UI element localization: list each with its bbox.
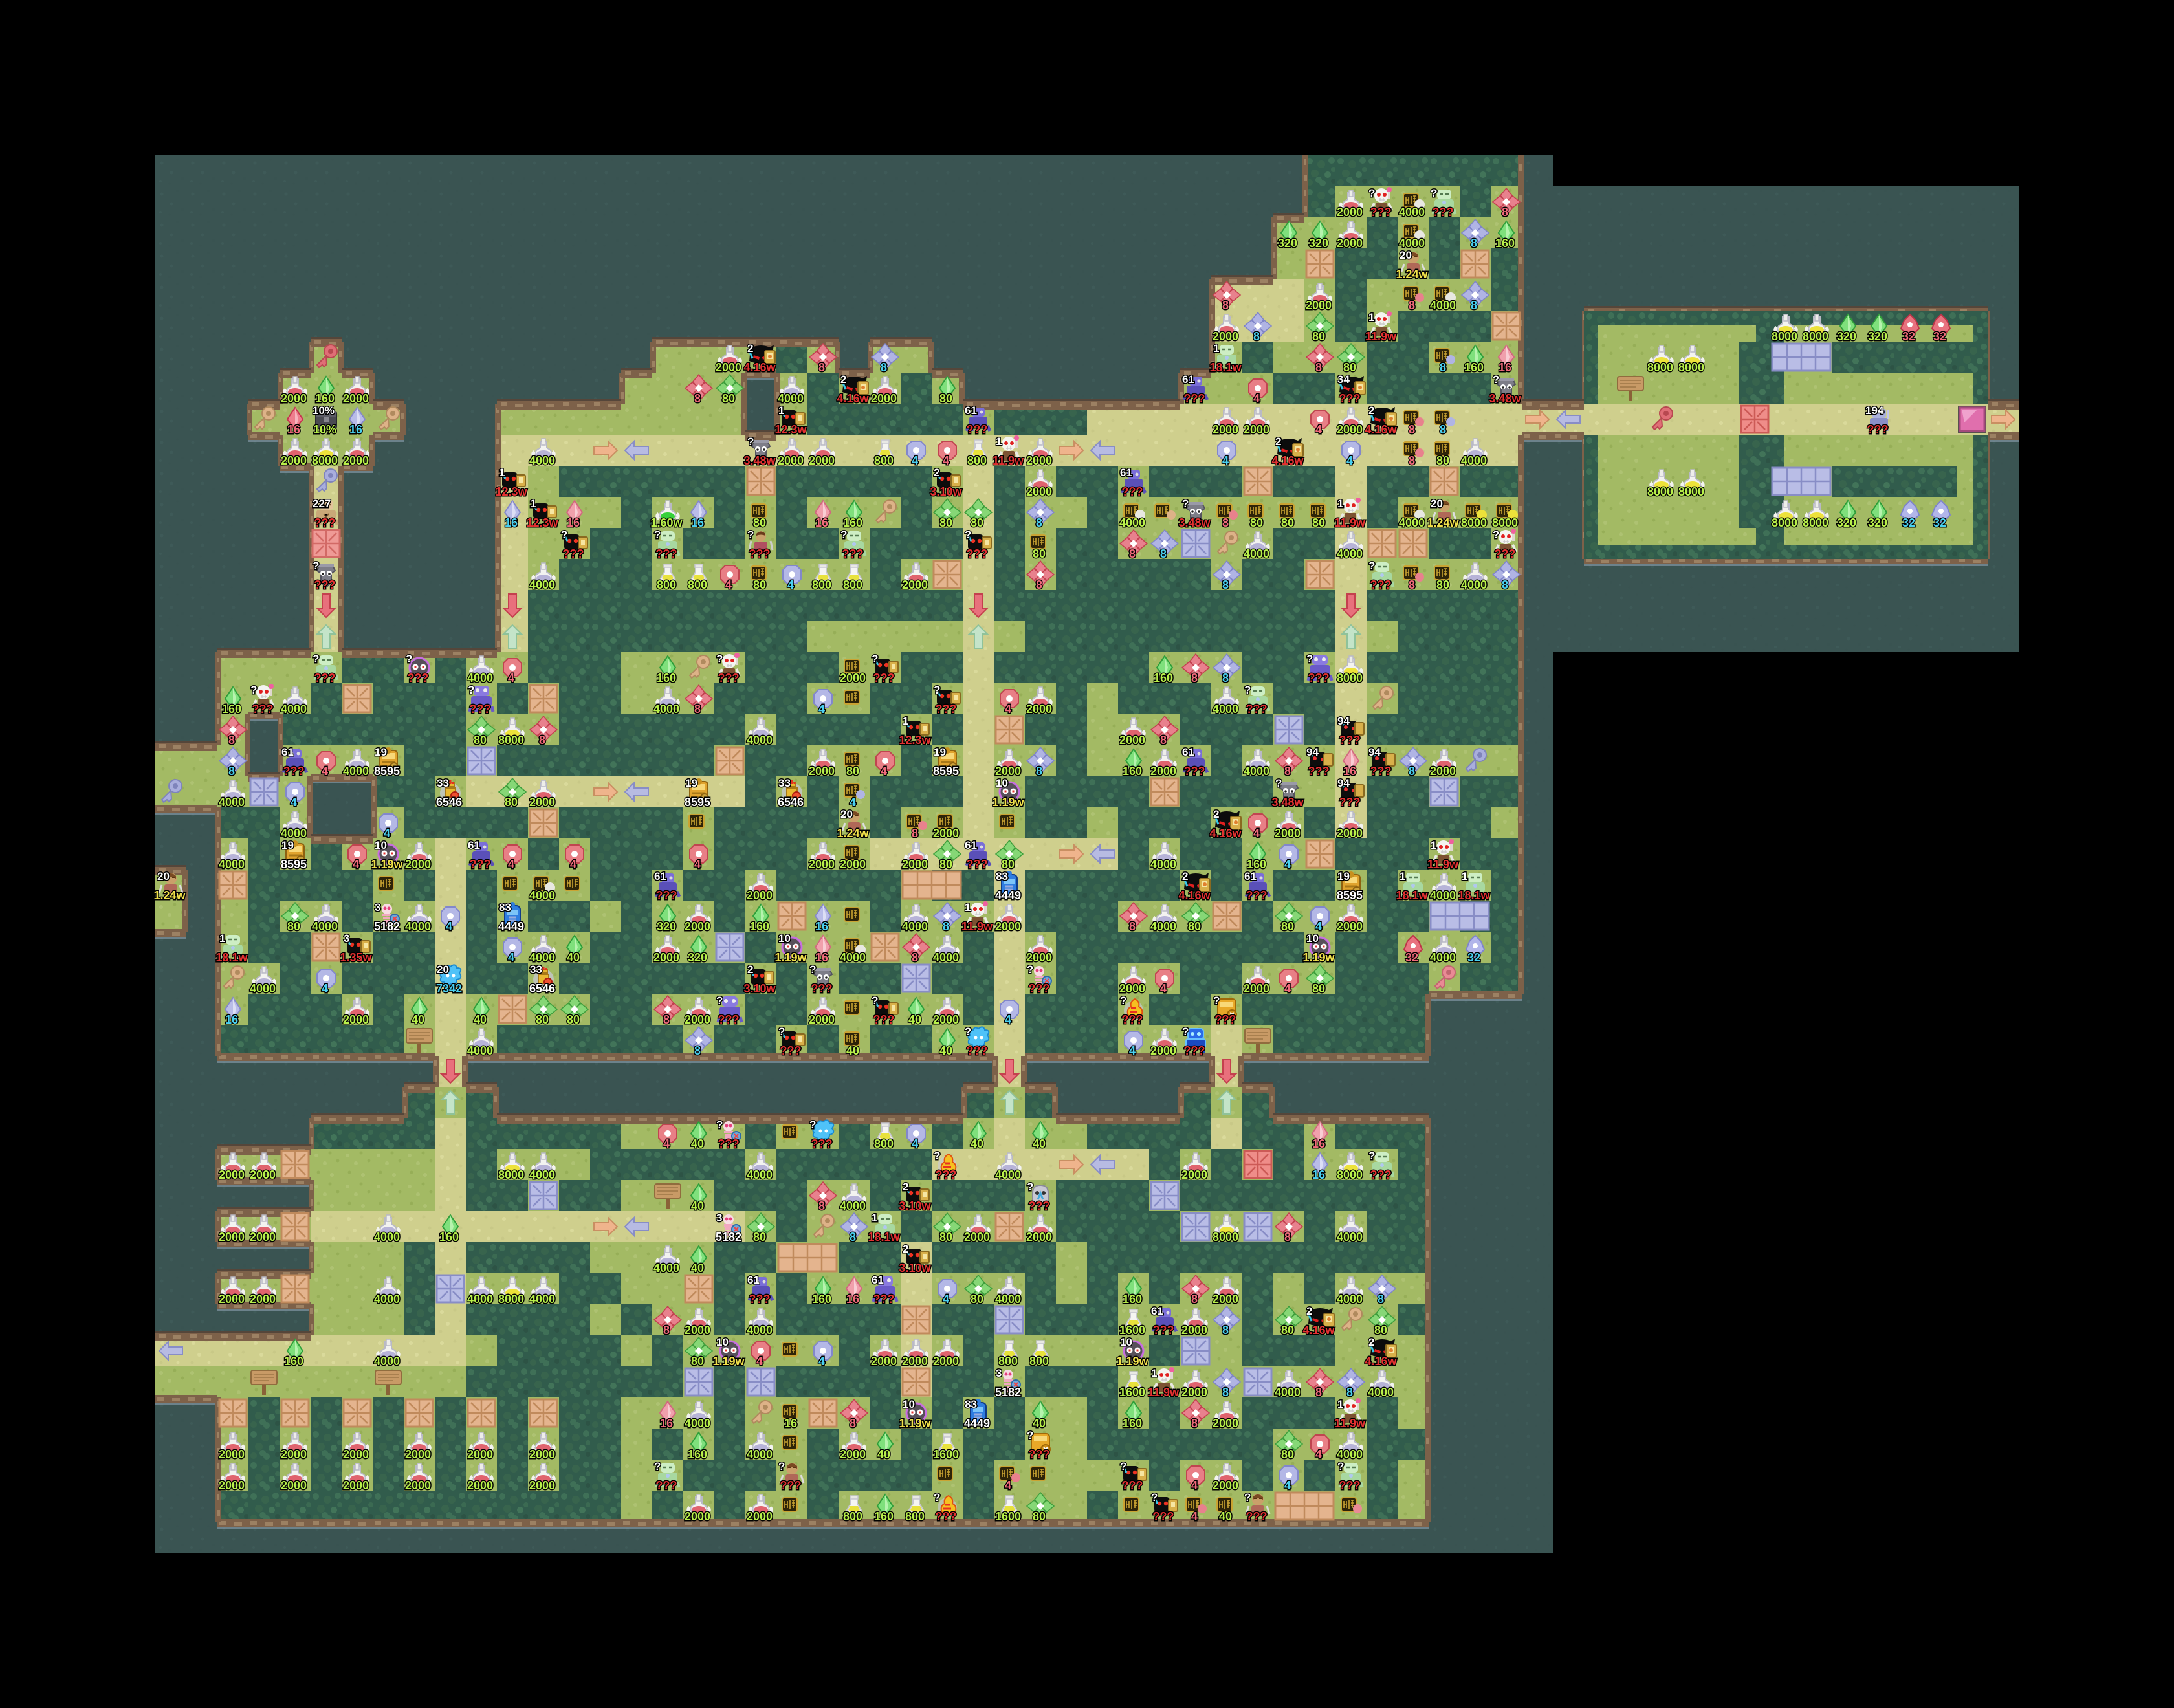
svg-text:8: 8 <box>1222 299 1229 312</box>
svg-text:4: 4 <box>787 578 794 591</box>
svg-text:2: 2 <box>840 373 846 386</box>
svg-text:160: 160 <box>1154 672 1173 684</box>
svg-text:2000: 2000 <box>405 858 431 871</box>
svg-text:40: 40 <box>412 1013 424 1026</box>
svg-text:160: 160 <box>1123 1417 1142 1430</box>
svg-text:?: ? <box>809 963 816 976</box>
svg-text:???: ??? <box>1308 672 1330 684</box>
svg-text:160: 160 <box>315 392 335 405</box>
svg-text:???: ??? <box>1246 703 1268 716</box>
svg-text:8: 8 <box>1409 578 1415 591</box>
svg-text:18.1w: 18.1w <box>1209 361 1242 374</box>
svg-text:61: 61 <box>468 839 480 851</box>
svg-text:???: ??? <box>811 1137 833 1150</box>
svg-text:3.48w: 3.48w <box>1271 796 1304 809</box>
svg-text:4000: 4000 <box>529 454 555 467</box>
svg-text:???: ??? <box>1339 734 1361 747</box>
svg-text:?: ? <box>965 529 971 541</box>
svg-text:4000: 4000 <box>529 1168 555 1181</box>
svg-text:80: 80 <box>1033 1510 1046 1523</box>
svg-text:19: 19 <box>1337 870 1350 882</box>
svg-text:1: 1 <box>1400 870 1405 882</box>
svg-text:80: 80 <box>536 1013 549 1026</box>
svg-text:3.10w: 3.10w <box>743 982 776 995</box>
svg-text:4000: 4000 <box>840 1199 866 1212</box>
svg-text:4000: 4000 <box>312 920 338 933</box>
svg-text:11.9w: 11.9w <box>1334 1417 1366 1430</box>
svg-text:1600: 1600 <box>1119 1386 1145 1399</box>
svg-text:80: 80 <box>1436 578 1449 591</box>
svg-text:40: 40 <box>474 1013 487 1026</box>
svg-text:4: 4 <box>694 858 701 871</box>
svg-text:1: 1 <box>1213 342 1219 355</box>
svg-text:???: ??? <box>780 1044 802 1057</box>
svg-text:2: 2 <box>747 963 753 976</box>
svg-text:???: ??? <box>1122 485 1143 498</box>
svg-text:80: 80 <box>1188 920 1201 933</box>
svg-text:4: 4 <box>1346 454 1353 467</box>
svg-text:11.9w: 11.9w <box>1148 1386 1180 1399</box>
svg-text:8000: 8000 <box>1803 516 1828 529</box>
svg-text:1: 1 <box>499 466 505 479</box>
svg-text:8: 8 <box>663 1324 670 1337</box>
svg-text:???: ??? <box>1370 1168 1392 1181</box>
svg-text:8: 8 <box>1471 237 1477 250</box>
svg-text:80: 80 <box>1250 516 1263 529</box>
svg-text:2000: 2000 <box>747 1510 773 1523</box>
svg-text:???: ??? <box>936 1168 957 1181</box>
svg-text:2000: 2000 <box>809 454 835 467</box>
svg-text:?: ? <box>1368 1150 1375 1162</box>
svg-text:16: 16 <box>1499 361 1511 374</box>
svg-text:2000: 2000 <box>1337 423 1363 436</box>
svg-text:61: 61 <box>747 1274 760 1286</box>
svg-text:4: 4 <box>850 796 856 809</box>
svg-text:2000: 2000 <box>1026 454 1052 467</box>
svg-text:160: 160 <box>1123 765 1142 778</box>
svg-text:4000: 4000 <box>219 796 245 809</box>
svg-text:2000: 2000 <box>902 578 928 591</box>
svg-text:8: 8 <box>881 361 887 374</box>
svg-text:2000: 2000 <box>685 1324 710 1337</box>
svg-text:8: 8 <box>694 392 701 405</box>
svg-text:?: ? <box>313 653 319 665</box>
svg-text:???: ??? <box>936 1510 957 1523</box>
svg-text:33: 33 <box>530 963 542 976</box>
svg-text:4: 4 <box>322 765 328 778</box>
svg-text:160: 160 <box>657 672 676 684</box>
svg-text:160: 160 <box>222 703 241 716</box>
svg-text:4000: 4000 <box>1368 1386 1394 1399</box>
svg-text:2000: 2000 <box>1150 765 1176 778</box>
svg-text:16: 16 <box>287 423 300 436</box>
svg-text:???: ??? <box>873 1293 895 1306</box>
svg-text:8: 8 <box>850 1231 856 1243</box>
svg-text:8: 8 <box>228 765 235 778</box>
svg-text:8: 8 <box>1222 672 1229 684</box>
svg-text:8: 8 <box>1129 920 1136 933</box>
svg-text:3.48w: 3.48w <box>1489 392 1521 405</box>
svg-text:4: 4 <box>384 827 390 840</box>
svg-text:2000: 2000 <box>343 454 369 467</box>
svg-text:?: ? <box>1027 963 1033 976</box>
svg-text:?: ? <box>1431 187 1437 199</box>
svg-text:???: ??? <box>314 672 336 684</box>
svg-text:?: ? <box>872 653 878 665</box>
svg-text:?: ? <box>934 1150 940 1162</box>
svg-text:40: 40 <box>1219 1510 1232 1523</box>
svg-text:8000: 8000 <box>312 454 338 467</box>
svg-text:4000: 4000 <box>1399 206 1425 219</box>
svg-text:4: 4 <box>1222 454 1229 467</box>
svg-text:8: 8 <box>694 703 701 716</box>
svg-text:???: ??? <box>656 889 677 902</box>
svg-text:2000: 2000 <box>529 1448 555 1461</box>
svg-text:2000: 2000 <box>933 1355 959 1368</box>
svg-text:40: 40 <box>908 1013 921 1026</box>
svg-text:16: 16 <box>815 920 828 933</box>
svg-text:80: 80 <box>1281 516 1294 529</box>
svg-text:8595: 8595 <box>685 796 710 809</box>
svg-text:2000: 2000 <box>1213 1417 1238 1430</box>
svg-text:2000: 2000 <box>902 858 928 871</box>
svg-text:?: ? <box>561 529 567 541</box>
svg-text:2000: 2000 <box>1337 237 1363 250</box>
svg-text:320: 320 <box>657 920 676 933</box>
svg-text:2000: 2000 <box>685 1013 710 1026</box>
svg-text:8: 8 <box>1409 423 1415 436</box>
svg-text:1.19w: 1.19w <box>371 858 403 871</box>
svg-text:4000: 4000 <box>653 1262 679 1275</box>
svg-text:?: ? <box>1244 684 1251 696</box>
svg-text:8: 8 <box>1036 578 1042 591</box>
svg-text:800: 800 <box>657 578 676 591</box>
svg-text:80: 80 <box>1281 920 1294 933</box>
svg-text:80: 80 <box>753 1231 766 1243</box>
svg-text:???: ??? <box>1246 889 1268 902</box>
svg-text:8: 8 <box>1222 1324 1229 1337</box>
svg-text:8: 8 <box>1191 1293 1198 1306</box>
svg-text:8595: 8595 <box>933 765 959 778</box>
svg-text:2: 2 <box>1275 435 1281 448</box>
svg-text:2000: 2000 <box>1150 1044 1176 1057</box>
svg-text:32: 32 <box>1405 951 1418 964</box>
svg-text:???: ??? <box>1370 578 1392 591</box>
svg-text:8: 8 <box>1036 516 1042 529</box>
svg-text:4.16w: 4.16w <box>1271 454 1304 467</box>
svg-text:20: 20 <box>1431 498 1443 510</box>
svg-text:8: 8 <box>1315 1386 1322 1399</box>
svg-text:???: ??? <box>1122 1013 1143 1026</box>
svg-text:1.60w: 1.60w <box>650 516 683 529</box>
svg-text:4: 4 <box>508 672 514 684</box>
svg-text:2000: 2000 <box>281 1448 307 1461</box>
svg-text:8: 8 <box>1036 765 1042 778</box>
svg-text:2000: 2000 <box>250 1293 276 1306</box>
svg-text:8: 8 <box>663 1013 670 1026</box>
svg-text:???: ??? <box>1433 206 1454 219</box>
svg-text:???: ??? <box>1308 765 1330 778</box>
svg-text:4000: 4000 <box>1337 547 1363 560</box>
svg-text:?: ? <box>1337 1460 1344 1473</box>
svg-text:4: 4 <box>353 858 359 871</box>
svg-text:???: ??? <box>1495 547 1516 560</box>
svg-text:5182: 5182 <box>995 1386 1021 1399</box>
svg-text:2000: 2000 <box>1213 330 1238 343</box>
svg-text:80: 80 <box>1436 454 1449 467</box>
svg-text:4000: 4000 <box>1399 516 1425 529</box>
svg-text:?: ? <box>1306 653 1313 665</box>
svg-text:18.1w: 18.1w <box>1396 889 1428 902</box>
svg-text:4.16w: 4.16w <box>1365 423 1397 436</box>
svg-text:10: 10 <box>1306 932 1319 945</box>
svg-text:4: 4 <box>291 796 297 809</box>
svg-text:4000: 4000 <box>747 1448 773 1461</box>
svg-text:???: ??? <box>967 858 988 871</box>
svg-text:???: ??? <box>1339 392 1361 405</box>
svg-text:19: 19 <box>685 777 697 789</box>
svg-text:2000: 2000 <box>1244 423 1269 436</box>
svg-text:4.16w: 4.16w <box>1178 889 1211 902</box>
svg-text:2000: 2000 <box>1026 951 1052 964</box>
svg-text:?: ? <box>1027 1181 1033 1193</box>
svg-text:2000: 2000 <box>1026 485 1052 498</box>
svg-text:80: 80 <box>1312 330 1325 343</box>
svg-text:12.3w: 12.3w <box>495 485 527 498</box>
svg-text:1: 1 <box>1337 498 1343 510</box>
svg-text:3.10w: 3.10w <box>899 1199 931 1212</box>
svg-text:8: 8 <box>228 734 235 747</box>
svg-text:8: 8 <box>818 1199 825 1212</box>
svg-text:4: 4 <box>912 454 918 467</box>
svg-text:2000: 2000 <box>529 1479 555 1492</box>
svg-text:8: 8 <box>539 734 545 747</box>
svg-text:4: 4 <box>1253 827 1260 840</box>
svg-text:2000: 2000 <box>871 1355 897 1368</box>
svg-text:???: ??? <box>1184 392 1205 405</box>
svg-text:2: 2 <box>1213 808 1219 820</box>
svg-text:160: 160 <box>843 516 862 529</box>
svg-text:?: ? <box>747 529 754 541</box>
svg-text:160: 160 <box>812 1293 831 1306</box>
svg-text:8: 8 <box>1129 547 1136 560</box>
svg-text:?: ? <box>965 1025 971 1038</box>
svg-text:?: ? <box>1275 777 1282 789</box>
svg-text:32: 32 <box>1933 516 1946 529</box>
svg-text:???: ??? <box>936 703 957 716</box>
svg-text:?: ? <box>654 529 661 541</box>
svg-text:40: 40 <box>1033 1417 1046 1430</box>
svg-text:11.9w: 11.9w <box>1365 330 1397 343</box>
svg-text:?: ? <box>1027 1429 1033 1441</box>
svg-text:4000: 4000 <box>840 951 866 964</box>
svg-text:2: 2 <box>934 466 939 479</box>
svg-text:4000: 4000 <box>1244 765 1269 778</box>
svg-text:80: 80 <box>971 516 983 529</box>
svg-text:???: ??? <box>656 547 677 560</box>
svg-text:32: 32 <box>1467 951 1480 964</box>
svg-text:2000: 2000 <box>685 920 710 933</box>
svg-text:20: 20 <box>1400 249 1412 261</box>
svg-text:2000: 2000 <box>1181 1324 1207 1337</box>
svg-text:320: 320 <box>1278 237 1297 250</box>
svg-text:1.19w: 1.19w <box>712 1355 745 1368</box>
svg-text:4000: 4000 <box>405 920 431 933</box>
svg-text:20: 20 <box>437 963 449 976</box>
svg-text:???: ??? <box>1370 206 1392 219</box>
svg-text:???: ??? <box>718 1137 740 1150</box>
svg-text:4000: 4000 <box>529 1293 555 1306</box>
svg-text:4000: 4000 <box>747 1324 773 1337</box>
svg-text:8: 8 <box>850 1417 856 1430</box>
svg-text:?: ? <box>778 1460 785 1473</box>
svg-text:8595: 8595 <box>374 765 400 778</box>
svg-text:2000: 2000 <box>809 765 835 778</box>
svg-text:4: 4 <box>1191 1479 1198 1492</box>
svg-text:40: 40 <box>971 1137 983 1150</box>
svg-text:20: 20 <box>157 870 170 882</box>
svg-text:80: 80 <box>567 1013 580 1026</box>
svg-text:10: 10 <box>778 932 791 945</box>
svg-text:?: ? <box>1244 1491 1251 1504</box>
svg-text:4: 4 <box>1253 392 1260 405</box>
svg-text:8: 8 <box>1160 547 1167 560</box>
svg-text:320: 320 <box>1868 330 1887 343</box>
svg-text:2000: 2000 <box>840 858 866 871</box>
svg-text:800: 800 <box>967 454 987 467</box>
svg-text:8: 8 <box>694 1044 701 1057</box>
svg-text:4000: 4000 <box>1213 703 1238 716</box>
svg-text:800: 800 <box>998 1355 1018 1368</box>
svg-text:4000: 4000 <box>374 1355 400 1368</box>
svg-text:4000: 4000 <box>219 858 245 871</box>
svg-text:8: 8 <box>1253 330 1260 343</box>
svg-text:160: 160 <box>1464 361 1484 374</box>
svg-text:3: 3 <box>375 901 380 914</box>
svg-text:4000: 4000 <box>529 578 555 591</box>
svg-text:2000: 2000 <box>1026 1231 1052 1243</box>
svg-text:3.48w: 3.48w <box>1178 516 1211 529</box>
svg-text:80: 80 <box>753 516 766 529</box>
svg-text:?: ? <box>716 1119 723 1131</box>
svg-text:8: 8 <box>1409 454 1415 467</box>
svg-text:1: 1 <box>1431 839 1436 851</box>
svg-text:?: ? <box>406 653 412 665</box>
svg-text:???: ??? <box>967 547 988 560</box>
svg-text:320: 320 <box>1309 237 1328 250</box>
svg-text:2000: 2000 <box>1337 206 1363 219</box>
svg-text:8: 8 <box>1160 734 1167 747</box>
svg-text:1.35w: 1.35w <box>340 951 372 964</box>
svg-text:16: 16 <box>815 516 828 529</box>
svg-text:800: 800 <box>843 1510 862 1523</box>
svg-text:8: 8 <box>1284 765 1291 778</box>
svg-text:10: 10 <box>903 1398 915 1410</box>
svg-text:2000: 2000 <box>250 1168 276 1181</box>
svg-text:40: 40 <box>1033 1137 1046 1150</box>
svg-text:4000: 4000 <box>1119 516 1145 529</box>
svg-text:2000: 2000 <box>1430 765 1456 778</box>
svg-text:2000: 2000 <box>1119 982 1145 995</box>
svg-text:8: 8 <box>1409 299 1415 312</box>
svg-text:8595: 8595 <box>281 858 307 871</box>
svg-text:83: 83 <box>996 870 1008 882</box>
svg-text:4000: 4000 <box>1399 237 1425 250</box>
svg-text:2000: 2000 <box>1213 1479 1238 1492</box>
svg-text:4: 4 <box>1191 1510 1198 1523</box>
svg-text:94: 94 <box>1368 746 1381 758</box>
svg-text:1: 1 <box>996 435 1002 448</box>
svg-text:2000: 2000 <box>653 951 679 964</box>
svg-text:8: 8 <box>1315 361 1322 374</box>
svg-text:2000: 2000 <box>1213 423 1238 436</box>
svg-text:8000: 8000 <box>498 734 524 747</box>
svg-text:4: 4 <box>1284 858 1291 871</box>
svg-text:80: 80 <box>846 765 859 778</box>
svg-text:?: ? <box>468 684 474 696</box>
svg-text:16: 16 <box>660 1417 673 1430</box>
svg-text:2: 2 <box>1368 1336 1374 1348</box>
svg-text:160: 160 <box>1495 237 1515 250</box>
svg-text:???: ??? <box>718 1013 740 1026</box>
svg-text:18.1w: 18.1w <box>215 951 248 964</box>
svg-text:2000: 2000 <box>964 1231 990 1243</box>
svg-text:40: 40 <box>691 1262 704 1275</box>
svg-text:4000: 4000 <box>529 951 555 964</box>
svg-text:???: ??? <box>1370 765 1392 778</box>
svg-text:2000: 2000 <box>281 392 307 405</box>
svg-text:4: 4 <box>943 1293 949 1306</box>
svg-text:4.16w: 4.16w <box>743 361 776 374</box>
svg-text:1: 1 <box>530 498 536 510</box>
svg-text:800: 800 <box>874 454 894 467</box>
svg-text:???: ??? <box>1153 1324 1174 1337</box>
svg-text:???: ??? <box>1184 1044 1205 1057</box>
svg-text:40: 40 <box>691 1137 704 1150</box>
svg-text:33: 33 <box>778 777 791 789</box>
svg-text:8000: 8000 <box>1803 330 1828 343</box>
svg-text:61: 61 <box>654 870 666 882</box>
svg-text:2000: 2000 <box>1026 703 1052 716</box>
svg-text:???: ??? <box>470 858 491 871</box>
svg-text:2000: 2000 <box>1244 982 1269 995</box>
svg-text:8: 8 <box>1440 361 1446 374</box>
svg-text:4: 4 <box>1284 982 1291 995</box>
svg-text:3: 3 <box>716 1212 722 1224</box>
svg-text:???: ??? <box>252 703 274 716</box>
svg-text:80: 80 <box>939 516 952 529</box>
svg-text:2000: 2000 <box>840 672 866 684</box>
svg-text:61: 61 <box>872 1274 884 1286</box>
svg-text:2000: 2000 <box>405 1448 431 1461</box>
svg-text:2: 2 <box>903 1243 908 1255</box>
svg-text:61: 61 <box>1182 373 1194 386</box>
svg-text:16: 16 <box>505 516 518 529</box>
svg-text:61: 61 <box>1151 1305 1163 1317</box>
svg-text:8000: 8000 <box>1213 1231 1238 1243</box>
svg-text:1: 1 <box>219 932 225 945</box>
svg-text:16: 16 <box>349 423 362 436</box>
svg-text:2: 2 <box>903 1181 908 1193</box>
svg-text:160: 160 <box>284 1355 303 1368</box>
svg-text:2000: 2000 <box>1337 920 1363 933</box>
svg-text:16: 16 <box>567 516 580 529</box>
svg-text:1.24w: 1.24w <box>837 827 869 840</box>
svg-text:80: 80 <box>1312 982 1325 995</box>
svg-text:8: 8 <box>1346 1386 1353 1399</box>
svg-text:???: ??? <box>1122 1479 1143 1492</box>
svg-text:???: ??? <box>780 1479 802 1492</box>
